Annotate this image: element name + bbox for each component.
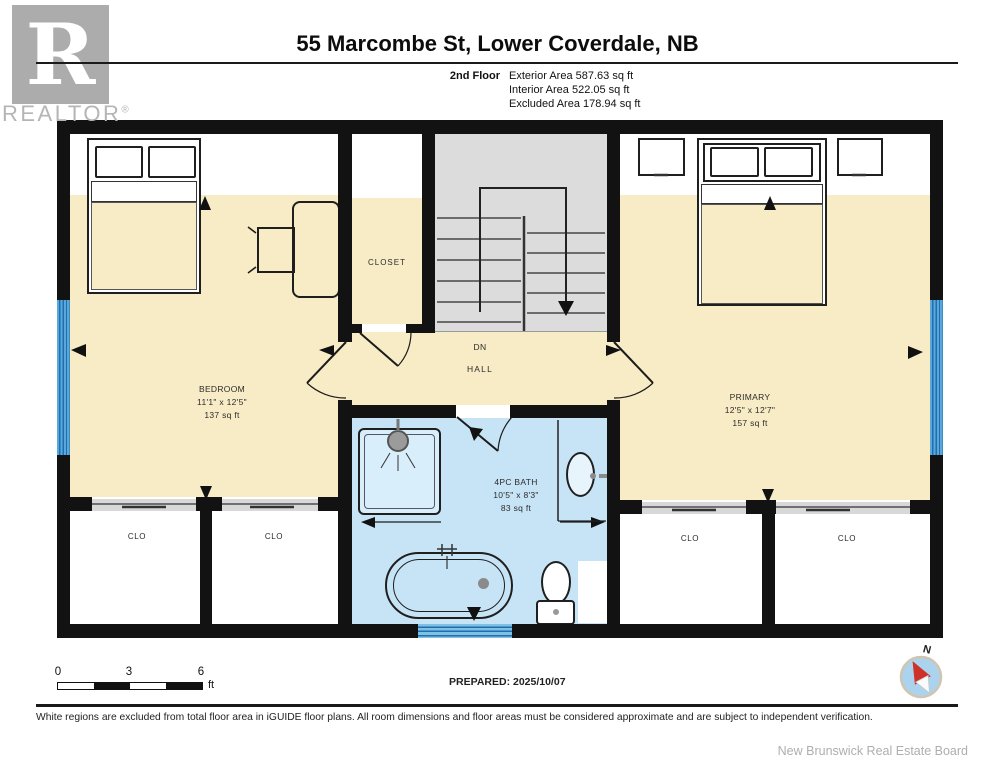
- wall-bottom: [512, 624, 943, 638]
- wall-closet-divider-left: [200, 511, 212, 624]
- scale-label-3: 3: [123, 666, 135, 678]
- wall-bottom: [57, 624, 418, 638]
- wall-bath-top: [345, 405, 456, 418]
- scale-segment: [130, 683, 166, 689]
- scale-segment: [94, 683, 130, 689]
- window-bath: [418, 624, 512, 638]
- pillow: [710, 147, 759, 177]
- wall-bedroom-hall: [338, 120, 352, 342]
- desk-chair: [257, 227, 295, 273]
- compass-icon: [891, 647, 951, 707]
- bathtub-drain: [478, 578, 489, 589]
- desk: [292, 201, 340, 298]
- room-dims: 10'5" x 8'3": [456, 489, 576, 502]
- bed-mattress: [91, 202, 197, 290]
- window-right: [930, 300, 943, 455]
- attribution-text: New Brunswick Real Estate Board: [700, 744, 968, 758]
- bath-excluded-region: [578, 561, 607, 623]
- scale-bar: [57, 682, 203, 690]
- realtor-logo: R: [12, 5, 109, 104]
- bed-blanket-fold: [91, 181, 197, 202]
- hall-label: HALL: [434, 363, 526, 376]
- title-rule: [36, 62, 958, 64]
- wall-bedroom-closets: [57, 497, 92, 511]
- exterior-area: Exterior Area 587.63 sq ft: [509, 70, 633, 82]
- scale-segment: [166, 683, 202, 689]
- clo-label: CLO: [102, 530, 172, 543]
- wall-primary-closets: [746, 500, 776, 514]
- scale-label-6: 6: [195, 666, 207, 678]
- shower-head: [387, 430, 409, 452]
- wall-stairs-primary: [607, 120, 620, 342]
- wall-bath-top: [510, 405, 620, 418]
- nightstand: [837, 138, 883, 176]
- excluded-area: Excluded Area 178.94 sq ft: [509, 98, 640, 110]
- pillow: [148, 146, 196, 178]
- wall-closet-bottom: [346, 324, 362, 333]
- primary-label: PRIMARY 12'5" x 12'7" 157 sq ft: [690, 391, 810, 430]
- bedroom-label: BEDROOM 11'1" x 12'5" 137 sq ft: [162, 383, 282, 422]
- room-dims: 11'1" x 12'5": [162, 396, 282, 409]
- room-area: 83 sq ft: [456, 502, 576, 515]
- clo-label: CLO: [812, 532, 882, 545]
- closet-track-right1: [642, 502, 746, 514]
- toilet-button: [553, 609, 559, 615]
- disclaimer-text: White regions are excluded from total fl…: [36, 712, 966, 723]
- room-name: PRIMARY: [690, 391, 810, 404]
- primary-bed-mattress: [701, 204, 823, 304]
- wall-top: [57, 120, 943, 134]
- scale-segment: [58, 683, 94, 689]
- window-left: [57, 300, 70, 455]
- toilet-bowl: [541, 561, 571, 604]
- wall-bedroom-hall: [338, 400, 352, 624]
- closet-label: CLOSET: [352, 256, 422, 269]
- closet-track-left2: [222, 499, 318, 511]
- wall-bedroom-closets: [196, 497, 222, 511]
- floor-label: 2nd Floor: [430, 70, 500, 82]
- floor-plan-page: R REALTOR® 55 Marcombe St, Lower Coverda…: [0, 0, 995, 768]
- realtor-logo-letter: R: [12, 5, 109, 104]
- wall-left: [57, 455, 70, 638]
- stairs-dn-label: DN: [434, 341, 526, 354]
- room-area: 137 sq ft: [162, 409, 282, 422]
- realtor-wordmark-text: REALTOR: [2, 101, 121, 126]
- wall-right: [930, 120, 943, 300]
- closet-track-left1: [92, 499, 196, 511]
- wall-bedroom-closets: [318, 497, 352, 511]
- wall-left: [57, 120, 70, 300]
- clo-label: CLO: [239, 530, 309, 543]
- clo-label: CLO: [655, 532, 725, 545]
- footer-rule: [36, 704, 958, 707]
- wall-right: [930, 455, 943, 638]
- interior-area: Interior Area 522.05 sq ft: [509, 84, 629, 96]
- prepared-date: PREPARED: 2025/10/07: [449, 676, 566, 688]
- realtor-wordmark: REALTOR®: [2, 101, 131, 127]
- scale-label-0: 0: [52, 666, 64, 678]
- nightstand: [638, 138, 685, 176]
- wall-closet-bottom: [406, 324, 422, 333]
- wall-primary-closets: [910, 500, 943, 514]
- primary-door-opening: [607, 342, 620, 400]
- pillow: [764, 147, 813, 177]
- room-dims: 12'5" x 12'7": [690, 404, 810, 417]
- bedroom-door-opening: [338, 342, 352, 400]
- room-name: BEDROOM: [162, 383, 282, 396]
- wall-bath-primary: [607, 400, 620, 624]
- room-area: 157 sq ft: [690, 417, 810, 430]
- registered-mark: ®: [121, 105, 131, 116]
- wall-closet-stairs: [422, 120, 435, 333]
- page-title: 55 Marcombe St, Lower Coverdale, NB: [0, 31, 995, 57]
- room-name: 4PC BATH: [456, 476, 576, 489]
- wall-primary-closets: [620, 500, 642, 514]
- bath-label: 4PC BATH 10'5" x 8'3" 83 sq ft: [456, 476, 576, 515]
- scale-unit: ft: [208, 679, 214, 691]
- wall-closet-divider-right: [762, 514, 775, 624]
- primary-bed-blanket-fold: [701, 184, 823, 204]
- closet-track-right2: [776, 502, 910, 514]
- pillow: [95, 146, 143, 178]
- stairwell-floor: [435, 134, 607, 333]
